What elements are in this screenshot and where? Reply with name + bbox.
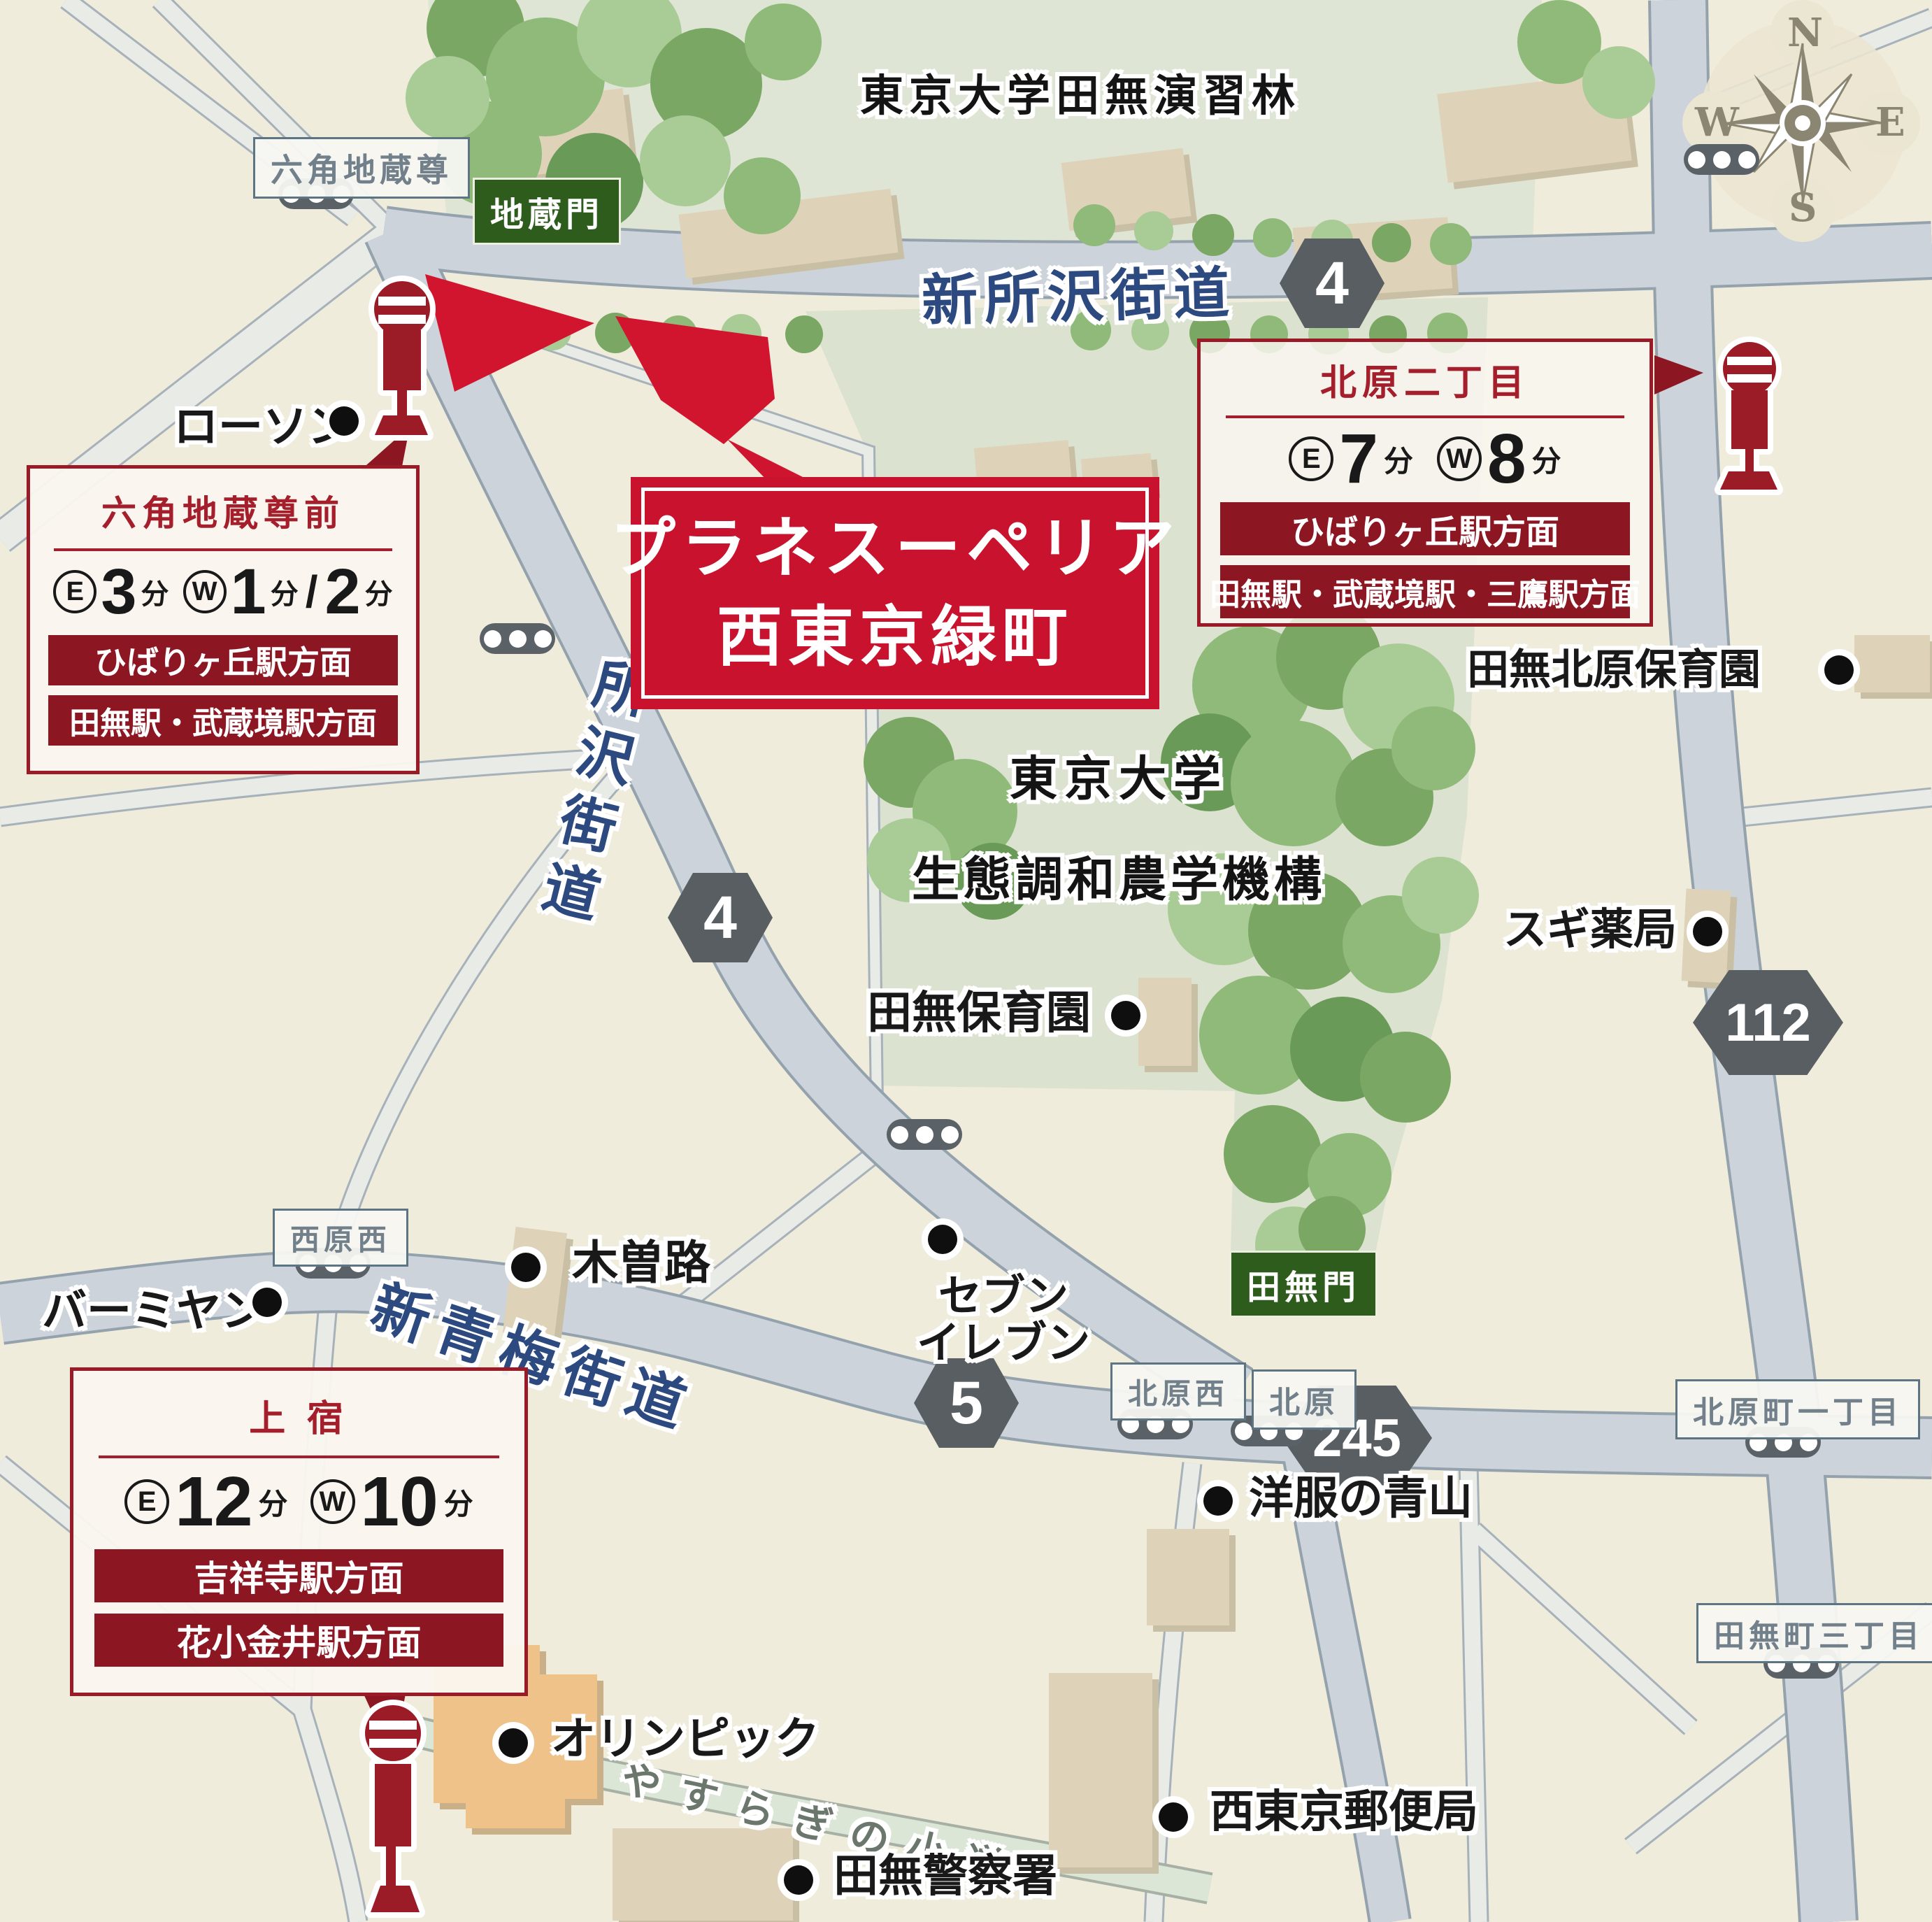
intersection-label-kitaharacho: 北原町一丁目 xyxy=(1675,1379,1920,1439)
poi-sugi-pharmacy: スギ薬局 xyxy=(1503,906,1677,953)
traffic-light-icon xyxy=(887,1119,962,1150)
bus-stop-name: 北原二丁目 xyxy=(1201,353,1650,406)
poi-bamiyan: バーミヤン xyxy=(42,1287,266,1335)
direction-band-1: 吉祥寺駅方面 xyxy=(94,1549,503,1602)
poi-kitahara-hoikuen: 田無北原保育園 xyxy=(1467,648,1761,693)
minute-unit: 分 xyxy=(141,571,169,612)
poi-post-office: 西東京郵便局 xyxy=(1210,1788,1478,1836)
gate-label-jizomon: 地蔵門 xyxy=(473,178,621,245)
poi-dot xyxy=(784,1865,813,1895)
direction-band-2: 田無駅・武蔵境駅・三鷹駅方面 xyxy=(1220,565,1630,618)
west-minutes: 1 xyxy=(231,560,266,624)
mainbox-pointer xyxy=(727,439,814,483)
east-minutes: 12 xyxy=(175,1467,252,1537)
divider xyxy=(54,548,392,551)
traffic-light-icon xyxy=(1684,144,1759,175)
poi-seven-eleven: セブンイレブン xyxy=(906,1273,1101,1367)
minute-unit: 分 xyxy=(1384,438,1413,480)
bus-times: E 3 分 W 1 分 / 2 分 xyxy=(30,560,416,624)
compass-e: E xyxy=(1875,99,1905,145)
poi-aoyama: 洋服の青山 xyxy=(1249,1474,1473,1523)
compass-n: N xyxy=(1787,10,1823,56)
minute-unit: 分 xyxy=(444,1481,473,1523)
divider xyxy=(1226,415,1624,418)
east-exit-icon: E xyxy=(124,1479,169,1524)
west-exit-icon: W xyxy=(1437,436,1482,481)
minute-unit: 分 xyxy=(271,571,299,612)
direction-band-2: 花小金井駅方面 xyxy=(94,1614,503,1667)
east-exit-icon: E xyxy=(1289,436,1333,481)
area-label-forest: 東京大学田無演習林 xyxy=(769,60,1391,123)
road-name-shin-tokorozawa: 新所沢街道 xyxy=(921,248,1238,337)
intersection-label-kitaharanishi: 北原西 xyxy=(1110,1362,1246,1421)
poi-lawson: ローソン xyxy=(173,403,352,451)
poi-dot xyxy=(1203,1486,1233,1516)
bus-stop-callout-kitahara2: 北原二丁目 E 7 分 W 8 分 ひばりヶ丘駅方面 田無駅・武蔵境駅・三鷹駅方… xyxy=(1197,339,1653,627)
bus-times: E 7 分 W 8 分 xyxy=(1201,424,1650,494)
minute-unit: 分 xyxy=(365,571,393,612)
poi-olympic: オリンピック xyxy=(551,1715,820,1763)
poi-dot xyxy=(1159,1802,1188,1832)
poi-dot xyxy=(511,1253,541,1282)
compass-s: S xyxy=(1789,185,1817,231)
site-parcel-west xyxy=(425,274,594,392)
east-exit-icon: E xyxy=(53,570,96,613)
poi-dot xyxy=(928,1225,957,1254)
east-minutes: 7 xyxy=(1339,424,1378,494)
poi-tanashi-hoikuen: 田無保育園 xyxy=(867,989,1091,1037)
poi-dot xyxy=(1824,655,1854,685)
area-label-univ-line2: 生態調和農学機構 xyxy=(825,841,1412,910)
gate-label-tanashimon: 田無門 xyxy=(1229,1251,1378,1318)
slash: / xyxy=(306,566,318,618)
intersection-label-nishiharanishi: 西原西 xyxy=(273,1209,408,1267)
bus-stop-name: 六角地蔵尊前 xyxy=(30,485,416,536)
traffic-light-icon xyxy=(480,623,555,654)
area-label-univ-line1: 東京大学 xyxy=(944,740,1294,809)
poi-dot xyxy=(499,1728,528,1758)
west-minutes: 10 xyxy=(361,1467,438,1537)
access-map: 新所沢街道 所沢街道 新青梅街道 やすらぎの小道 東京大学田無演習林 東京大学 … xyxy=(0,0,1932,1922)
west-exit-icon: W xyxy=(310,1479,355,1524)
minute-unit: 分 xyxy=(1532,438,1561,480)
minute-unit: 分 xyxy=(258,1481,287,1523)
intersection-label-kitahara: 北原 xyxy=(1252,1369,1357,1430)
direction-band-1: ひばりヶ丘駅方面 xyxy=(48,635,398,685)
bus-stop-callout-kamijuku: 上 宿 E 12 分 W 10 分 吉祥寺駅方面 花小金井駅方面 xyxy=(70,1367,528,1696)
bus-stop-name: 上 宿 xyxy=(73,1389,524,1441)
project-site-box-inner: プラネスーペリア 西東京緑町 xyxy=(641,487,1149,699)
poi-dot xyxy=(1693,917,1722,946)
compass-w: W xyxy=(1695,99,1739,145)
divider xyxy=(99,1455,499,1458)
west-exit-icon: W xyxy=(183,570,227,613)
intersection-label-tanashicho: 田無町三丁目 xyxy=(1696,1603,1932,1663)
intersection-label-rokkaku: 六角地蔵尊 xyxy=(253,137,470,199)
project-name-line1: プラネスーペリア xyxy=(610,504,1180,593)
project-name-line2: 西東京緑町 xyxy=(717,593,1073,682)
west-minutes: 8 xyxy=(1487,424,1526,494)
bus-times: E 12 分 W 10 分 xyxy=(73,1467,524,1537)
project-site-box: プラネスーペリア 西東京緑町 xyxy=(631,477,1159,709)
west-minutes-2: 2 xyxy=(324,560,360,624)
poi-dot xyxy=(252,1288,282,1317)
poi-kisoji: 木曽路 xyxy=(572,1238,710,1288)
bus-stop-callout-rokkaku: 六角地蔵尊前 E 3 分 W 1 分 / 2 分 ひばりヶ丘駅方面 田無駅・武蔵… xyxy=(27,465,420,774)
poi-police: 田無警察署 xyxy=(833,1852,1057,1900)
poi-dot xyxy=(329,406,359,436)
poi-dot xyxy=(1111,1001,1140,1030)
east-minutes: 3 xyxy=(101,560,136,624)
direction-band-2: 田無駅・武蔵境駅方面 xyxy=(48,695,398,746)
direction-band-1: ひばりヶ丘駅方面 xyxy=(1220,502,1630,555)
